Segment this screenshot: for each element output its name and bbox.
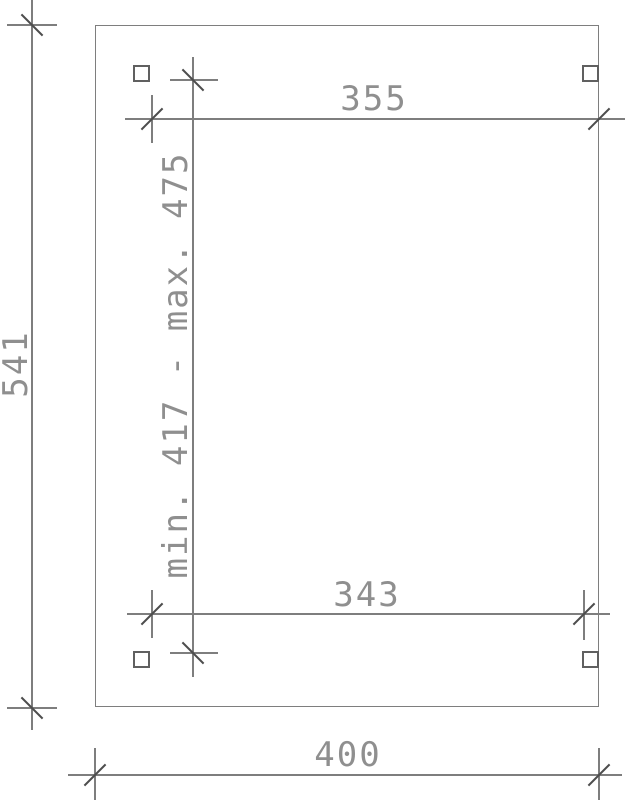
post-bottom-left-icon xyxy=(133,651,150,668)
post-top-left-icon xyxy=(133,65,150,82)
dim-minmax-label: min. 417 - max. 475 xyxy=(159,152,193,579)
dim-355-label: 355 xyxy=(340,82,407,116)
foundation-plan-drawing: 541 400 355 343 min. 417 - max. 475 xyxy=(0,0,625,800)
dim-400-label: 400 xyxy=(314,738,381,772)
post-top-right-icon xyxy=(582,65,599,82)
dim-343-label: 343 xyxy=(333,578,400,612)
dim-541-label: 541 xyxy=(0,330,33,397)
post-bottom-right-icon xyxy=(582,651,599,668)
